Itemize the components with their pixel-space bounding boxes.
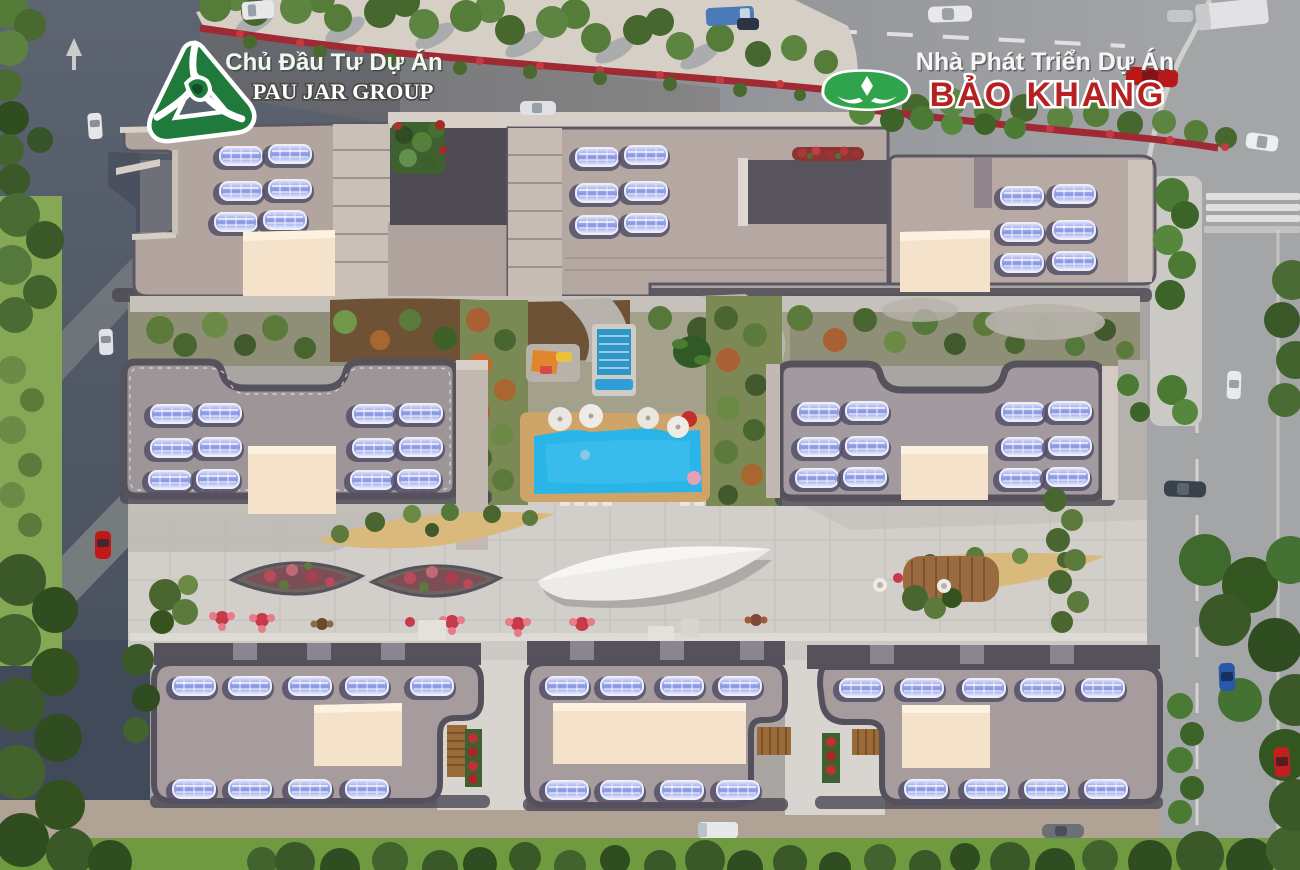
svg-text:BẢO KHANG: BẢO KHANG (930, 76, 1167, 114)
svg-text:PAU JAR GROUP: PAU JAR GROUP (253, 79, 434, 104)
svg-text:Chủ Đầu Tư Dự Án: Chủ Đầu Tư Dự Án (225, 48, 442, 76)
svg-text:Nhà Phát Triển Dự Án: Nhà Phát Triển Dự Án (916, 47, 1174, 76)
